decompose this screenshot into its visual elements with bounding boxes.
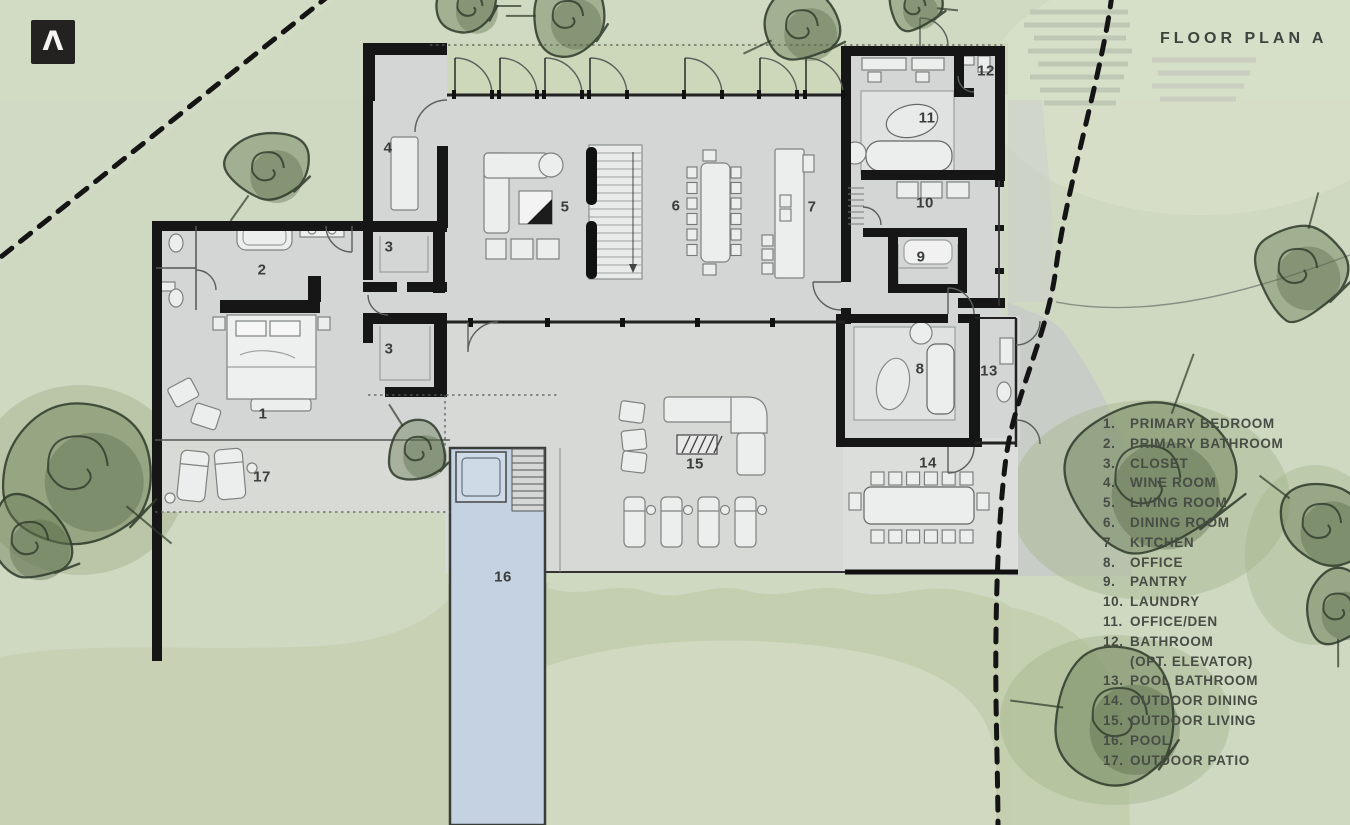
tree [224,133,310,221]
legend-item: 4.WINE ROOM [1103,473,1333,493]
lawn-left [0,600,448,825]
room-label-pool-bathroom: 13 [980,363,998,380]
room-label-bathroom-elevator: 12 [977,63,995,80]
room-label-dining-room: 6 [672,198,681,215]
legend-item: 1.PRIMARY BEDROOM [1103,414,1333,434]
room-label-wine-room: 4 [384,140,393,157]
legend-item: 13.POOL BATHROOM [1103,671,1333,691]
room-label-closet-lower: 3 [385,341,394,358]
legend-item: 12.BATHROOM [1103,632,1333,652]
washer [897,182,918,198]
legend-item: 11.OFFICE/DEN [1103,612,1333,632]
room-legend: 1.PRIMARY BEDROOM 2.PRIMARY BATHROOM 3.C… [1103,414,1333,770]
legend-item: 2.PRIMARY BATHROOM [1103,434,1333,454]
legend-item: 3.CLOSET [1103,454,1333,474]
legend-item: 8.OFFICE [1103,553,1333,573]
room-label-primary-bathroom: 2 [258,262,267,279]
legend-item: 7.KITCHEN [1103,533,1333,553]
dining-table [701,163,730,262]
legend-item: 14.OUTDOOR DINING [1103,691,1333,711]
floor-plan-sheet: Λ FLOOR PLAN A 1.PRIMARY BEDROOM 2.PRIMA… [0,0,1350,825]
bed [227,315,316,399]
tree [1255,192,1350,322]
room-label-closet-upper: 3 [385,239,394,256]
legend-item: 9.PANTRY [1103,572,1333,592]
legend-item-cont: x(OPT. ELEVATOR) [1103,652,1333,672]
room-label-pool: 16 [494,569,512,586]
page-title: FLOOR PLAN A [1160,30,1350,48]
room-label-living-room: 5 [561,199,570,216]
logo-glyph: Λ [43,28,64,55]
pool [450,448,545,825]
toilet [169,234,183,252]
hot-tub [456,452,506,502]
legend-item: 6.DINING ROOM [1103,513,1333,533]
room-label-outdoor-dining: 14 [919,455,937,472]
room-label-primary-bedroom: 1 [259,406,268,423]
office-desk [927,344,954,414]
den-sofa [866,141,952,171]
room-label-office-den: 11 [919,110,936,127]
legend-item: 5.LIVING ROOM [1103,493,1333,513]
pool-steps [512,449,544,511]
legend-item: 10.LAUNDRY [1103,592,1333,612]
staircase [586,145,642,279]
brand-logo: Λ [31,20,75,64]
wine-cabinet [391,137,418,210]
room-label-laundry: 10 [916,195,934,212]
room-label-kitchen: 7 [808,199,817,216]
room-label-outdoor-living: 15 [686,456,704,473]
room-label-pantry: 9 [917,249,926,266]
legend-item: 15.OUTDOOR LIVING [1103,711,1333,731]
legend-item: 17.OUTDOOR PATIO [1103,751,1333,771]
legend-item: 16.POOL [1103,731,1333,751]
outdoor-dining-table [864,487,974,524]
room-label-outdoor-patio: 17 [253,469,271,486]
room-label-office: 8 [916,361,925,378]
